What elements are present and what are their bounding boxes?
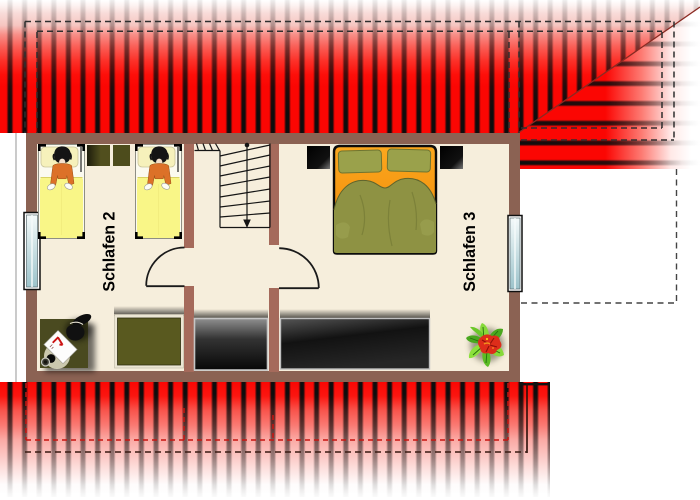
svg-text:Schlafen 2: Schlafen 2 [99,212,118,292]
svg-text:Schlafen 3: Schlafen 3 [460,212,479,292]
